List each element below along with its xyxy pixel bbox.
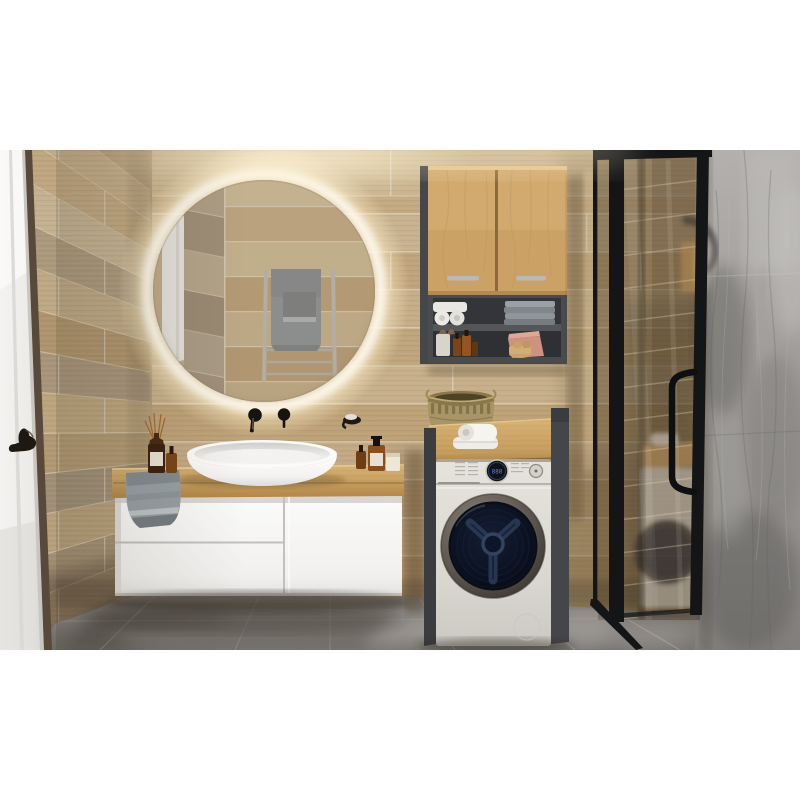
svg-text:888: 888 bbox=[492, 469, 503, 476]
